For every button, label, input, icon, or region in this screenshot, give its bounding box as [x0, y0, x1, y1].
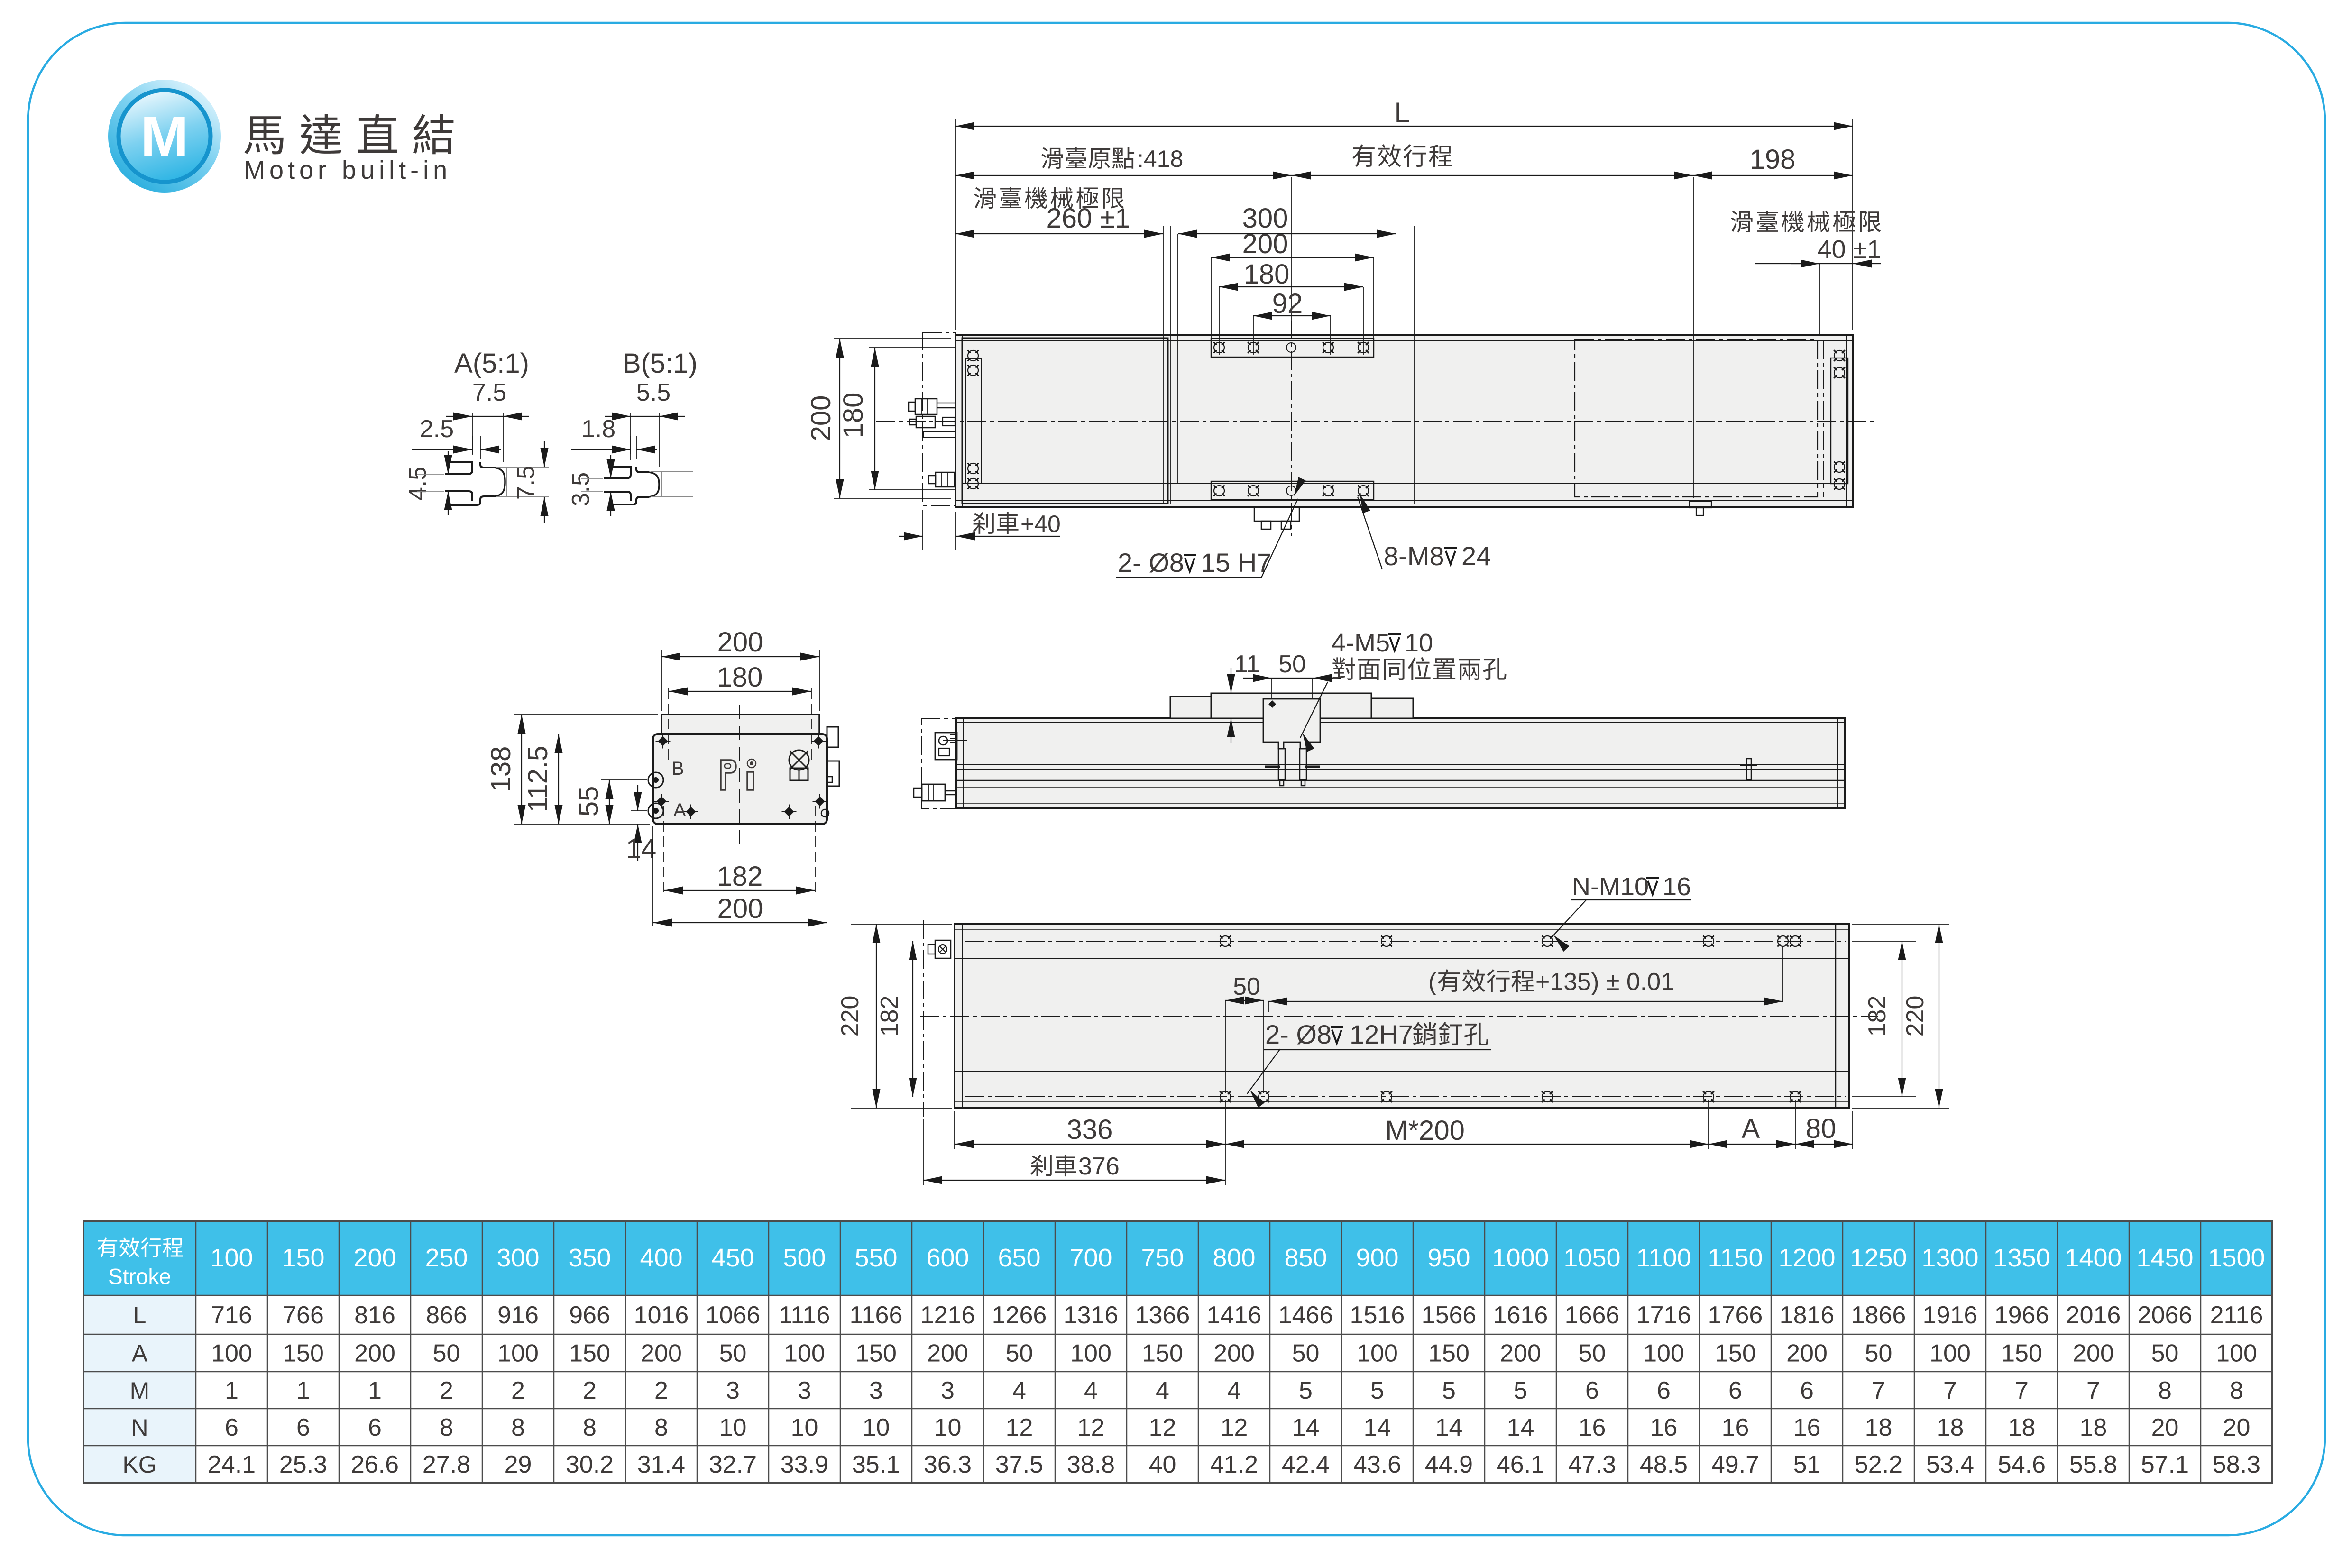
svg-text:1466: 1466	[1278, 1302, 1333, 1329]
svg-text:18: 18	[1865, 1414, 1893, 1441]
svg-text:A(5:1): A(5:1)	[454, 348, 529, 379]
svg-text:12: 12	[1149, 1414, 1176, 1441]
svg-text:12: 12	[1006, 1414, 1033, 1441]
svg-text:15 H7: 15 H7	[1201, 548, 1271, 578]
svg-text:112.5: 112.5	[523, 746, 553, 813]
svg-text:200: 200	[717, 627, 763, 658]
svg-text:3: 3	[941, 1377, 955, 1404]
svg-text:12: 12	[1077, 1414, 1105, 1441]
svg-text:6: 6	[296, 1414, 310, 1441]
svg-text:18: 18	[2008, 1414, 2036, 1441]
svg-text:55: 55	[573, 786, 604, 817]
svg-text:1966: 1966	[1994, 1302, 2049, 1329]
svg-text:138: 138	[486, 746, 516, 792]
svg-text:50: 50	[2151, 1340, 2179, 1367]
svg-text:37.5: 37.5	[995, 1451, 1043, 1478]
svg-text:2: 2	[440, 1377, 453, 1404]
svg-text:1366: 1366	[1135, 1302, 1190, 1329]
svg-text:7.5: 7.5	[512, 466, 540, 500]
svg-text:1516: 1516	[1350, 1302, 1405, 1329]
svg-text:1116: 1116	[779, 1302, 830, 1329]
svg-text:10: 10	[791, 1414, 818, 1441]
svg-text:200: 200	[1500, 1340, 1541, 1367]
svg-text:10: 10	[934, 1414, 962, 1441]
svg-text:1616: 1616	[1493, 1302, 1548, 1329]
svg-text:N-M10: N-M10	[1572, 872, 1649, 901]
svg-text:43.6: 43.6	[1353, 1451, 1401, 1478]
svg-text:1416: 1416	[1207, 1302, 1262, 1329]
svg-text:200: 200	[353, 1244, 396, 1272]
svg-text:50: 50	[1865, 1340, 1893, 1367]
svg-text:200: 200	[806, 395, 836, 441]
svg-text:+135) ± 0.01: +135) ± 0.01	[1535, 968, 1674, 996]
svg-text:150: 150	[1715, 1340, 1756, 1367]
svg-text:916: 916	[497, 1302, 539, 1329]
svg-text:100: 100	[1357, 1340, 1398, 1367]
svg-text:2066: 2066	[2138, 1302, 2193, 1329]
svg-text:14: 14	[1292, 1414, 1320, 1441]
svg-text:44.9: 44.9	[1425, 1451, 1473, 1478]
svg-text:7: 7	[1943, 1377, 1957, 1404]
svg-text:5: 5	[1299, 1377, 1313, 1404]
svg-text:50: 50	[1579, 1340, 1606, 1367]
svg-text:24.1: 24.1	[208, 1451, 256, 1478]
svg-text:6: 6	[1657, 1377, 1671, 1404]
svg-text:2- Ø8: 2- Ø8	[1265, 1019, 1332, 1049]
svg-text:12: 12	[1221, 1414, 1248, 1441]
svg-text:550: 550	[854, 1244, 897, 1272]
svg-text:30.2: 30.2	[566, 1451, 614, 1478]
svg-text:716: 716	[211, 1302, 252, 1329]
svg-text:80: 80	[1806, 1113, 1837, 1144]
svg-text:KG: KG	[122, 1451, 156, 1478]
svg-text:150: 150	[283, 1340, 324, 1367]
svg-text:850: 850	[1284, 1244, 1327, 1272]
svg-text:200: 200	[2073, 1340, 2114, 1367]
svg-text:260 ±1: 260 ±1	[1047, 203, 1130, 234]
svg-text:92: 92	[1272, 288, 1303, 319]
svg-text:180: 180	[838, 393, 869, 439]
svg-text:450: 450	[711, 1244, 754, 1272]
svg-text:100: 100	[1070, 1340, 1112, 1367]
svg-text:M: M	[130, 1377, 150, 1404]
svg-text:2: 2	[654, 1377, 668, 1404]
svg-text:A: A	[1742, 1113, 1760, 1144]
svg-text:1766: 1766	[1708, 1302, 1763, 1329]
svg-text:1566: 1566	[1422, 1302, 1477, 1329]
svg-text:150: 150	[569, 1340, 610, 1367]
svg-text:4: 4	[1156, 1377, 1169, 1404]
svg-text:4: 4	[1084, 1377, 1098, 1404]
svg-text:220: 220	[1902, 996, 1929, 1037]
svg-text:3: 3	[798, 1377, 811, 1404]
svg-text:8: 8	[583, 1414, 597, 1441]
svg-text:180: 180	[717, 662, 763, 693]
svg-text:24: 24	[1461, 541, 1491, 571]
svg-text:M*200: M*200	[1385, 1115, 1465, 1146]
svg-text:198: 198	[1750, 144, 1796, 175]
svg-text:50: 50	[1233, 973, 1260, 1000]
svg-text:250: 250	[425, 1244, 468, 1272]
svg-text:6: 6	[1585, 1377, 1599, 1404]
svg-text:31.4: 31.4	[637, 1451, 685, 1478]
svg-text:16: 16	[1793, 1414, 1821, 1441]
svg-text:2: 2	[583, 1377, 597, 1404]
svg-text:750: 750	[1141, 1244, 1184, 1272]
svg-text:200: 200	[717, 893, 763, 924]
svg-text:100: 100	[497, 1340, 539, 1367]
svg-text:2116: 2116	[2210, 1302, 2263, 1329]
svg-text:100: 100	[1929, 1340, 1971, 1367]
svg-text:200: 200	[1786, 1340, 1828, 1367]
svg-text:766: 766	[283, 1302, 324, 1329]
svg-text:33.9: 33.9	[781, 1451, 828, 1478]
svg-text:20: 20	[2223, 1414, 2251, 1441]
svg-text:300: 300	[496, 1244, 539, 1272]
svg-text:40 ±1: 40 ±1	[1818, 235, 1882, 264]
svg-text:2- Ø8: 2- Ø8	[1118, 548, 1184, 578]
svg-text:58.3: 58.3	[2213, 1451, 2260, 1478]
svg-text:32.7: 32.7	[709, 1451, 757, 1478]
svg-text:16: 16	[1663, 872, 1691, 901]
svg-text:100: 100	[2216, 1340, 2257, 1367]
svg-text:1066: 1066	[706, 1302, 761, 1329]
svg-text:1250: 1250	[1850, 1244, 1907, 1272]
svg-text:6: 6	[1800, 1377, 1814, 1404]
svg-text:1050: 1050	[1563, 1244, 1620, 1272]
svg-text:150: 150	[855, 1340, 897, 1367]
svg-text:14: 14	[626, 834, 657, 864]
svg-text:4: 4	[1227, 1377, 1241, 1404]
svg-text:8: 8	[511, 1414, 525, 1441]
svg-text:16: 16	[1650, 1414, 1678, 1441]
svg-text:2: 2	[511, 1377, 525, 1404]
svg-text:16: 16	[1722, 1414, 1749, 1441]
svg-text:150: 150	[282, 1244, 324, 1272]
svg-text:A: A	[132, 1340, 148, 1367]
svg-text:700: 700	[1069, 1244, 1112, 1272]
svg-text:100: 100	[210, 1244, 253, 1272]
svg-text:200: 200	[1213, 1340, 1255, 1367]
svg-text:1200: 1200	[1778, 1244, 1835, 1272]
svg-text:18: 18	[2080, 1414, 2107, 1441]
svg-text:5.5: 5.5	[636, 379, 671, 406]
svg-text:200: 200	[1242, 229, 1288, 259]
svg-text:150: 150	[1142, 1340, 1183, 1367]
svg-text:51: 51	[1793, 1451, 1821, 1478]
svg-text:180: 180	[1244, 259, 1290, 290]
svg-text:4-M5: 4-M5	[1332, 629, 1390, 657]
svg-text:100: 100	[784, 1340, 825, 1367]
svg-text:42.4: 42.4	[1282, 1451, 1330, 1478]
svg-text:1016: 1016	[634, 1302, 689, 1329]
svg-text:1816: 1816	[1780, 1302, 1835, 1329]
svg-text:3.5: 3.5	[567, 472, 595, 506]
svg-text:18: 18	[1937, 1414, 1964, 1441]
svg-text:182: 182	[1864, 996, 1891, 1037]
svg-text:26.6: 26.6	[351, 1451, 399, 1478]
svg-text:1500: 1500	[2208, 1244, 2265, 1272]
svg-text:400: 400	[640, 1244, 682, 1272]
svg-text:1666: 1666	[1565, 1302, 1620, 1329]
svg-text:376: 376	[1078, 1153, 1120, 1180]
svg-text:40: 40	[1149, 1451, 1176, 1478]
svg-text:5: 5	[1442, 1377, 1456, 1404]
svg-text:B(5:1): B(5:1)	[623, 348, 698, 379]
svg-text:55.8: 55.8	[2069, 1451, 2117, 1478]
svg-text:7: 7	[1872, 1377, 1885, 1404]
svg-text:336: 336	[1067, 1114, 1113, 1145]
svg-text:+40: +40	[1020, 511, 1061, 537]
svg-text:Stroke: Stroke	[108, 1264, 171, 1289]
svg-text:B: B	[671, 758, 684, 779]
svg-text:1000: 1000	[1492, 1244, 1549, 1272]
svg-text:50: 50	[719, 1340, 747, 1367]
svg-text:816: 816	[354, 1302, 395, 1329]
svg-text:200: 200	[641, 1340, 682, 1367]
svg-text:100: 100	[1643, 1340, 1684, 1367]
svg-text:1400: 1400	[2065, 1244, 2122, 1272]
svg-text:8: 8	[654, 1414, 668, 1441]
svg-text:10: 10	[1405, 629, 1433, 657]
svg-text:4.5: 4.5	[404, 467, 432, 501]
svg-text:182: 182	[717, 861, 763, 892]
svg-text:1716: 1716	[1636, 1302, 1691, 1329]
svg-text:8: 8	[2230, 1377, 2243, 1404]
svg-text:950: 950	[1427, 1244, 1470, 1272]
svg-text:36.3: 36.3	[924, 1451, 972, 1478]
svg-text:Motor built-in: Motor built-in	[244, 156, 451, 184]
svg-text:1316: 1316	[1064, 1302, 1119, 1329]
svg-text:(: (	[1428, 968, 1437, 996]
svg-text:5: 5	[1514, 1377, 1527, 1404]
svg-text:200: 200	[927, 1340, 968, 1367]
svg-text:41.2: 41.2	[1210, 1451, 1258, 1478]
svg-text:27.8: 27.8	[423, 1451, 470, 1478]
svg-text:1916: 1916	[1923, 1302, 1978, 1329]
svg-text:1866: 1866	[1851, 1302, 1906, 1329]
svg-text:1166: 1166	[850, 1302, 903, 1329]
svg-text:1150: 1150	[1708, 1244, 1763, 1272]
svg-text:14: 14	[1435, 1414, 1463, 1441]
svg-text:14: 14	[1507, 1414, 1534, 1441]
svg-text:7.5: 7.5	[472, 379, 506, 406]
svg-text:2016: 2016	[2066, 1302, 2121, 1329]
svg-text:1450: 1450	[2136, 1244, 2193, 1272]
svg-text:54.6: 54.6	[1998, 1451, 2046, 1478]
svg-text:1100: 1100	[1636, 1244, 1691, 1272]
svg-text:48.5: 48.5	[1640, 1451, 1688, 1478]
svg-text:650: 650	[998, 1244, 1040, 1272]
svg-text:6: 6	[1728, 1377, 1742, 1404]
svg-text:25.3: 25.3	[279, 1451, 327, 1478]
svg-text:A: A	[673, 800, 686, 821]
svg-text:29: 29	[505, 1451, 532, 1478]
svg-text:1: 1	[296, 1377, 310, 1404]
svg-text:M: M	[140, 104, 189, 169]
svg-text:500: 500	[783, 1244, 826, 1272]
svg-text:1216: 1216	[920, 1302, 975, 1329]
svg-text:50: 50	[1006, 1340, 1033, 1367]
svg-text:8-M8: 8-M8	[1384, 541, 1444, 571]
svg-text:1: 1	[225, 1377, 239, 1404]
svg-text:57.1: 57.1	[2141, 1451, 2189, 1478]
svg-text:6: 6	[368, 1414, 382, 1441]
svg-text:150: 150	[1428, 1340, 1470, 1367]
svg-text:800: 800	[1213, 1244, 1255, 1272]
svg-text:6: 6	[225, 1414, 239, 1441]
svg-text:100: 100	[211, 1340, 252, 1367]
svg-text:12H7: 12H7	[1350, 1019, 1413, 1049]
svg-text:350: 350	[568, 1244, 611, 1272]
svg-text:11: 11	[1234, 651, 1260, 678]
svg-text:220: 220	[836, 996, 864, 1037]
svg-text:10: 10	[719, 1414, 747, 1441]
svg-text::418: :418	[1137, 146, 1183, 172]
svg-text:900: 900	[1356, 1244, 1398, 1272]
svg-text:14: 14	[1364, 1414, 1391, 1441]
svg-text:50: 50	[1278, 651, 1306, 678]
svg-text:200: 200	[354, 1340, 395, 1367]
svg-text:20: 20	[2151, 1414, 2179, 1441]
svg-text:3: 3	[869, 1377, 883, 1404]
svg-text:16: 16	[1579, 1414, 1606, 1441]
svg-text:N: N	[131, 1414, 148, 1441]
svg-text:966: 966	[569, 1302, 610, 1329]
svg-text:4: 4	[1012, 1377, 1026, 1404]
svg-text:50: 50	[433, 1340, 460, 1367]
svg-text:L: L	[1394, 97, 1410, 128]
svg-text:5: 5	[1370, 1377, 1384, 1404]
svg-text:182: 182	[876, 996, 903, 1037]
svg-text:1: 1	[368, 1377, 382, 1404]
svg-text:L: L	[133, 1302, 147, 1329]
svg-text:35.1: 35.1	[852, 1451, 900, 1478]
svg-text:1300: 1300	[1921, 1244, 1978, 1272]
svg-text:1266: 1266	[992, 1302, 1047, 1329]
svg-text:8: 8	[2158, 1377, 2172, 1404]
svg-text:50: 50	[1292, 1340, 1320, 1367]
svg-text:49.7: 49.7	[1711, 1451, 1759, 1478]
svg-text:47.3: 47.3	[1568, 1451, 1616, 1478]
svg-text:38.8: 38.8	[1067, 1451, 1115, 1478]
svg-text:1.8: 1.8	[581, 415, 616, 443]
svg-text:7: 7	[2086, 1377, 2100, 1404]
svg-text:150: 150	[2001, 1340, 2042, 1367]
svg-text:1350: 1350	[1993, 1244, 2050, 1272]
svg-text:866: 866	[426, 1302, 467, 1329]
svg-text:3: 3	[726, 1377, 740, 1404]
svg-text:52.2: 52.2	[1855, 1451, 1902, 1478]
svg-text:2.5: 2.5	[420, 415, 454, 443]
svg-text:8: 8	[440, 1414, 453, 1441]
svg-text:7: 7	[2015, 1377, 2029, 1404]
svg-text:10: 10	[863, 1414, 890, 1441]
svg-text:53.4: 53.4	[1926, 1451, 1974, 1478]
svg-text:600: 600	[926, 1244, 969, 1272]
svg-text:46.1: 46.1	[1497, 1451, 1544, 1478]
